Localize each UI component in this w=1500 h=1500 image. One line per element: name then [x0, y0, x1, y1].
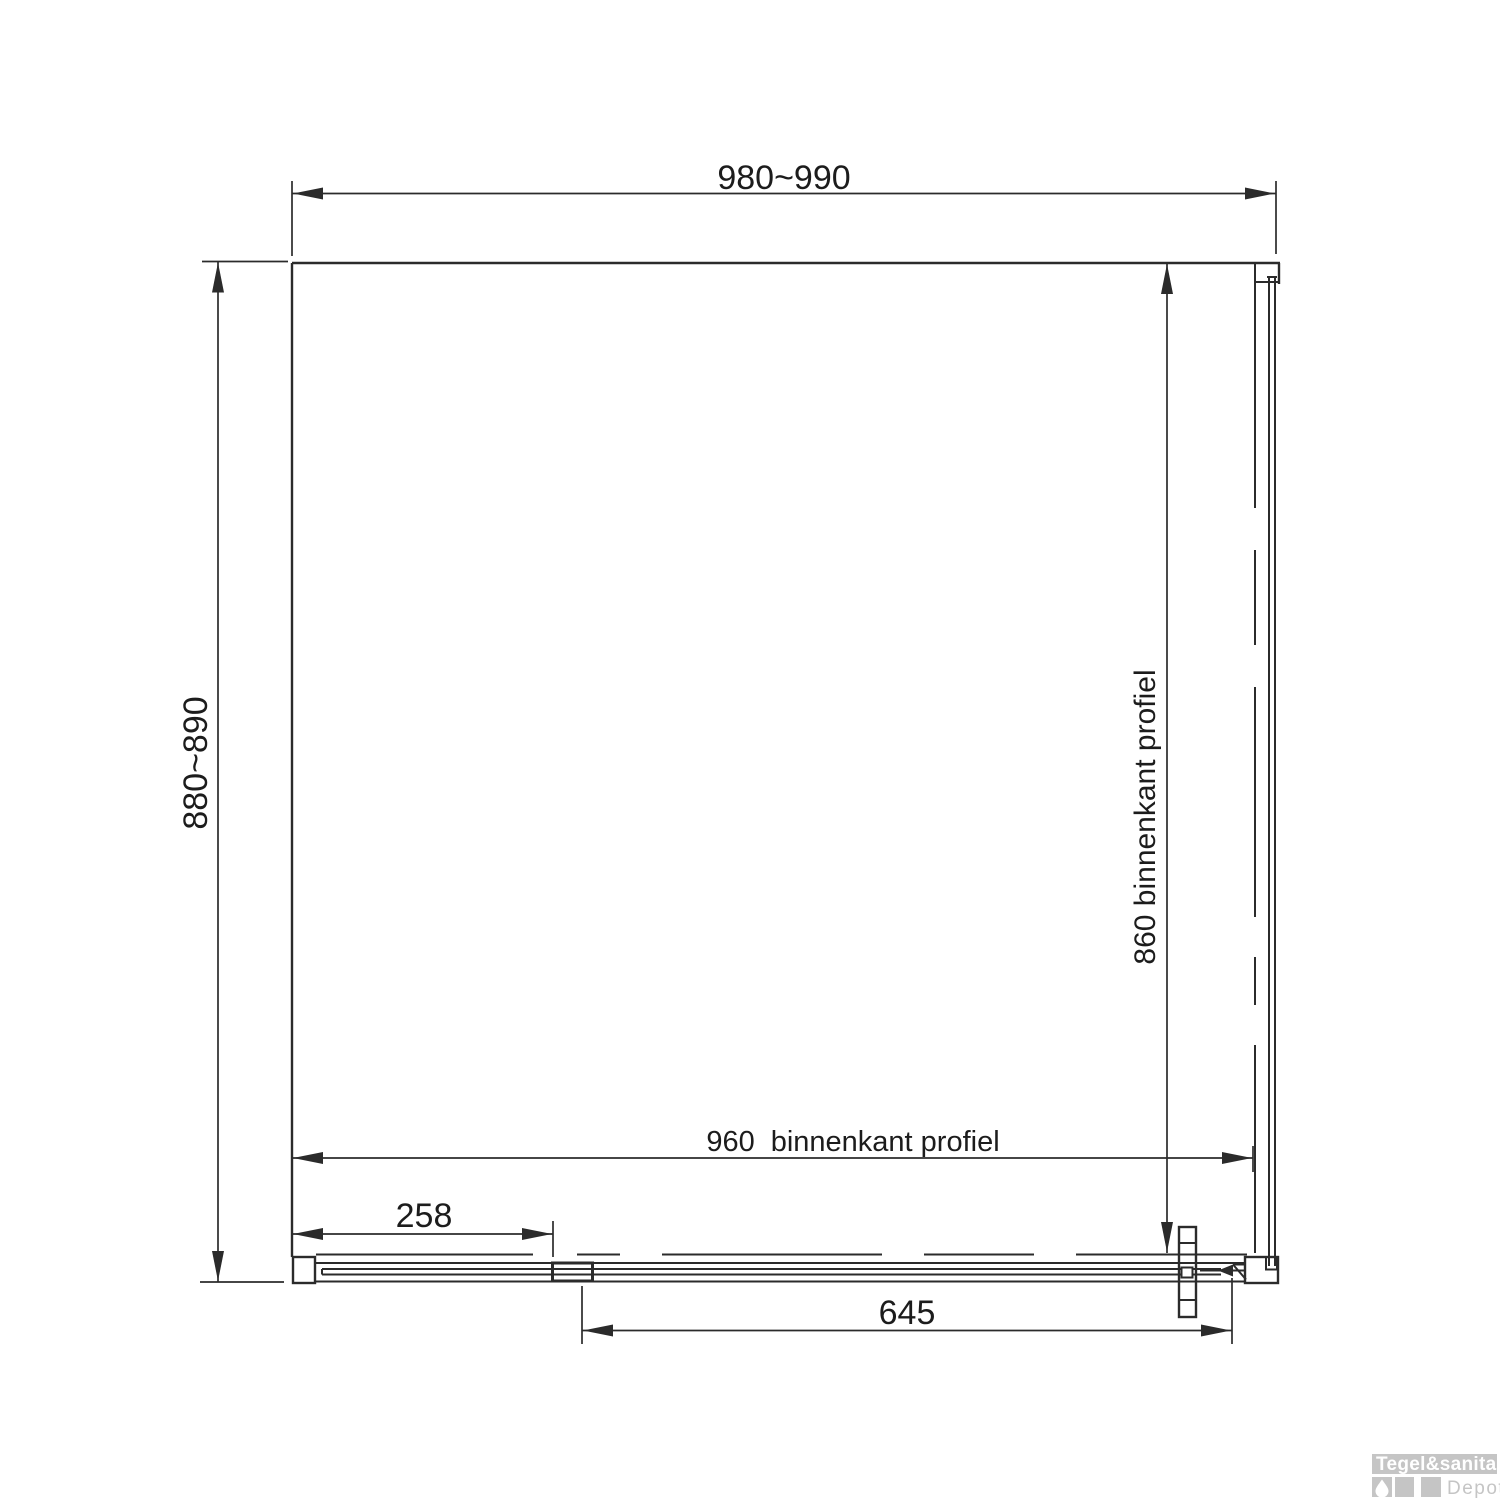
arrowhead-right: [1222, 1152, 1252, 1164]
technical-drawing-page: 980~990 880~890 860 binnenkant profiel 9…: [0, 0, 1500, 1500]
dim-inner-height-label: 860 binnenkant profiel: [1129, 669, 1162, 964]
handle-mount-block: [1182, 1268, 1193, 1278]
dim-inner-height: 860 binnenkant profiel: [1129, 263, 1173, 1253]
dim-door-width: 645: [582, 1278, 1232, 1344]
logo-square-3: [1421, 1477, 1441, 1497]
arrowhead-bottom: [1161, 1222, 1173, 1252]
dim-door-width-label: 645: [879, 1294, 936, 1332]
arrowhead-left: [293, 1228, 323, 1240]
right-glass-panel: [1267, 277, 1277, 1262]
door-handle: [1179, 1227, 1196, 1317]
inner-width-value: 960: [706, 1126, 754, 1158]
inner-width-text: binnenkant profiel: [771, 1126, 1000, 1158]
door-edge-block: [553, 1263, 593, 1281]
logo-square-2: [1395, 1477, 1414, 1497]
left-wall-profile-block: [293, 1257, 315, 1283]
arrowhead-top: [212, 263, 224, 293]
dim-left-offset: 258: [292, 1197, 553, 1257]
dim-outer-width-label: 980~990: [717, 159, 850, 197]
logo-subtitle-text: Depot: [1447, 1478, 1500, 1499]
shower-enclosure-plan-svg: 980~990 880~890 860 binnenkant profiel 9…: [0, 0, 1500, 1500]
arrowhead-bottom: [212, 1251, 224, 1281]
arrowhead-right: [1201, 1325, 1231, 1337]
dim-outer-width: 980~990: [292, 159, 1276, 256]
dim-inner-width: 960binnenkant profiel: [292, 1126, 1253, 1172]
brand-logo: Tegel&sanitair Depot: [1372, 1454, 1500, 1499]
logo-brand-text: Tegel&sanitair: [1376, 1454, 1500, 1475]
arrowhead-left: [293, 188, 323, 200]
arrowhead-right: [1245, 188, 1275, 200]
arrowhead-top: [1161, 264, 1173, 294]
dim-inner-width-label: 960binnenkant profiel: [706, 1126, 999, 1158]
dim-outer-depth: 880~890: [177, 262, 288, 1283]
dim-outer-depth-label: 880~890: [177, 696, 215, 829]
arrowhead-right: [522, 1228, 552, 1240]
arrowhead-left: [293, 1152, 323, 1164]
arrowhead-left: [583, 1325, 613, 1337]
bottom-rail: [293, 1255, 1278, 1284]
dim-left-offset-label: 258: [396, 1197, 453, 1235]
